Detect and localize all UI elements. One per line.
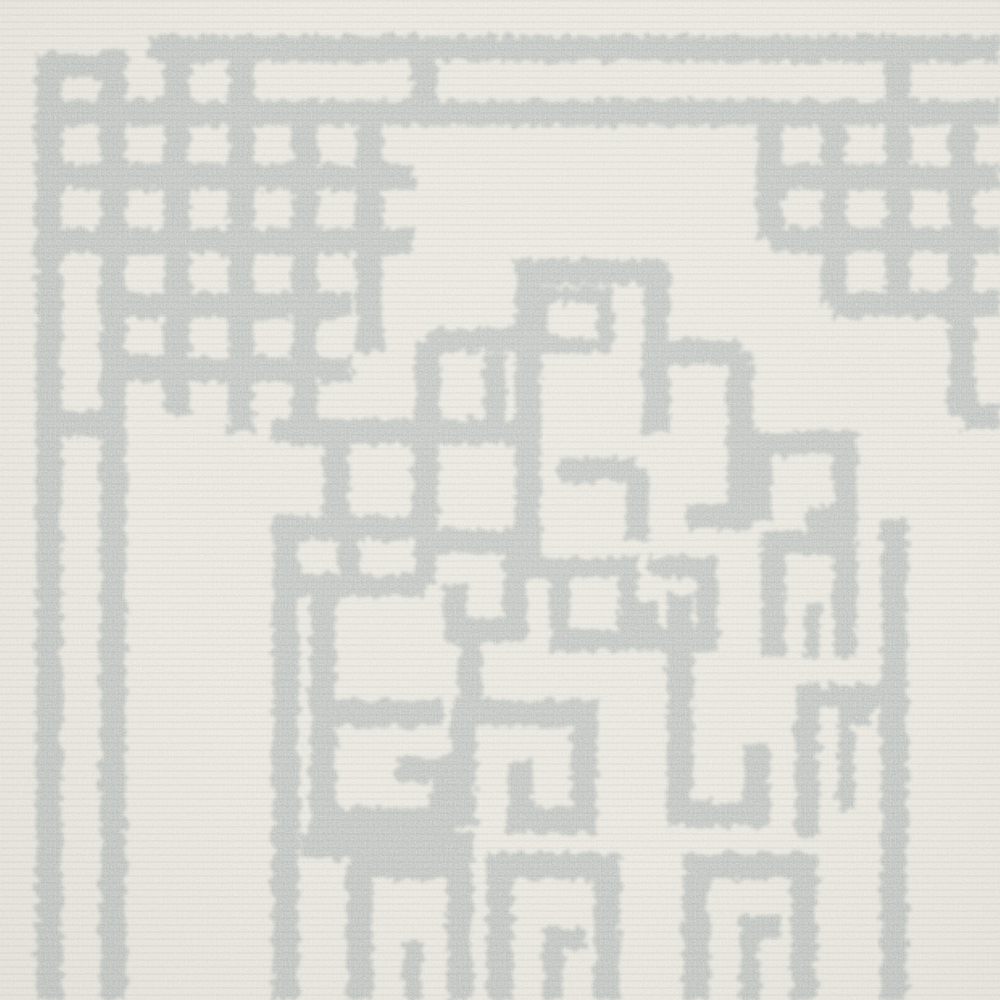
rug-photo [0, 0, 1000, 1000]
wool-grain-light [0, 0, 1000, 1000]
rug-pattern-svg [0, 0, 1000, 1000]
